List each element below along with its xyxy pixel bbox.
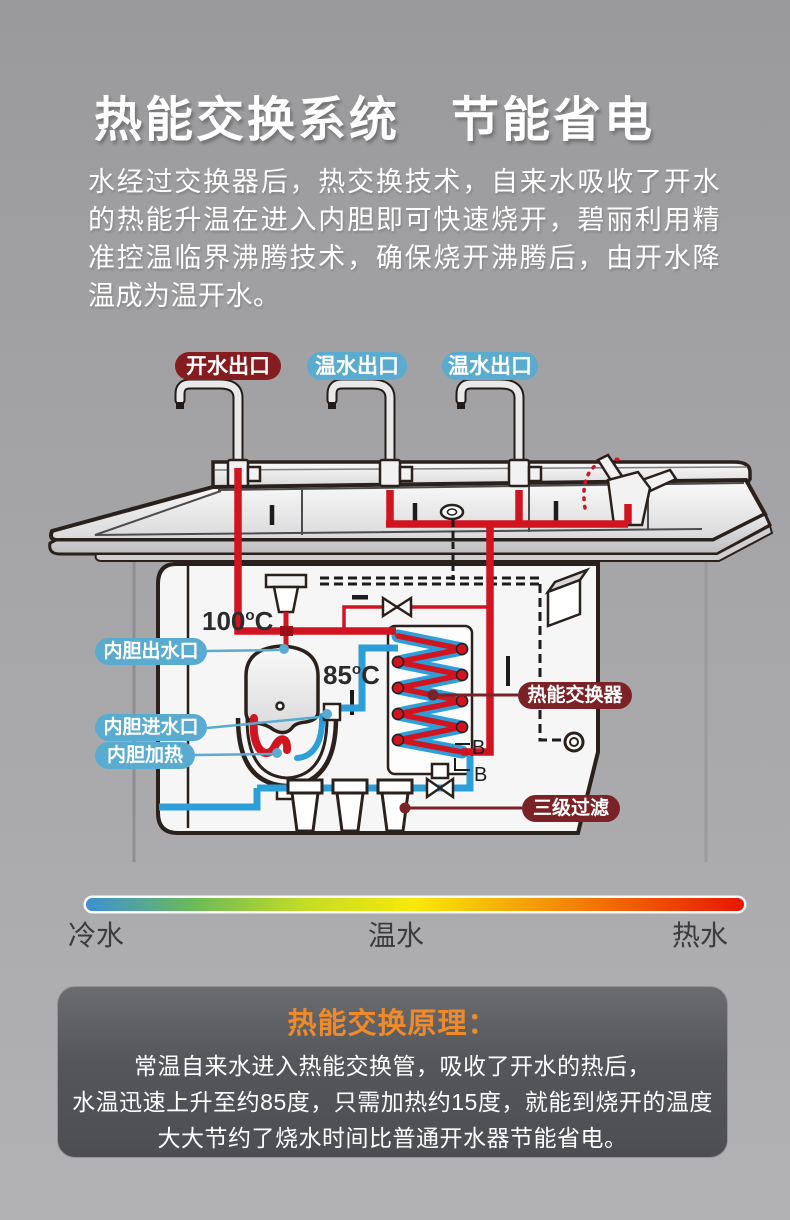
label-tank-heater: 内胆加热 [107,743,183,766]
principle-line-2: 水温迅速上升至约85度，只需加热约15度，就能到烧开的温度 [58,1084,727,1120]
label-heat-exchanger: 热能交换器 [527,683,623,706]
page-title: 热能交换系统 节能省电 [94,80,754,150]
label-warm-outlet-1: 温水出口 [315,355,399,378]
temp-warm: 85oC [323,660,380,690]
intro-text: 水经过交换器后，热交换技术，自来水吸收了开水的热能升温在进入内胆即可快速烧开，碧… [88,163,720,315]
scale-cold-label: 冷水 [68,914,124,954]
principle-panel: 热能交换原理： 常温自来水进入热能交换管，吸收了开水的热后， 水温迅速上升至约8… [57,986,728,1158]
label-tank-inlet: 内胆进水口 [103,715,198,738]
b-mark-2: B [474,764,487,786]
scale-hot-label: 热水 [672,914,728,954]
temp-boiling: 100oC [202,606,274,636]
label-filter: 三级过滤 [533,796,609,819]
b-mark-1: B [472,737,485,759]
principle-line-3: 大大节约了烧水时间比普通开水器节能省电。 [58,1120,727,1156]
label-warm-outlet-2: 温水出口 [448,355,532,378]
principle-line-1: 常温自来水进入热能交换管，吸收了开水的热后， [58,1048,727,1084]
page: 热能交换系统 节能省电 水经过交换器后，热交换技术，自来水吸收了开水的热能升温在… [0,0,790,1220]
scale-warm-label: 温水 [368,914,424,954]
filter-cartridges [288,780,412,831]
temperature-gradient-bar [86,898,744,911]
outlet-pills: 开水出口 温水出口 温水出口 [175,352,538,380]
label-boiling-outlet: 开水出口 [186,355,270,378]
system-diagram: B B 100oC 85oC 内胆出水口 内胆进水口 内胆加热 热能交换器 三 [0,340,790,885]
counter-sensor [441,505,463,519]
label-tank-outlet: 内胆出水口 [103,639,198,662]
principle-title: 热能交换原理： [58,1000,727,1042]
pipe-junction [280,626,293,636]
